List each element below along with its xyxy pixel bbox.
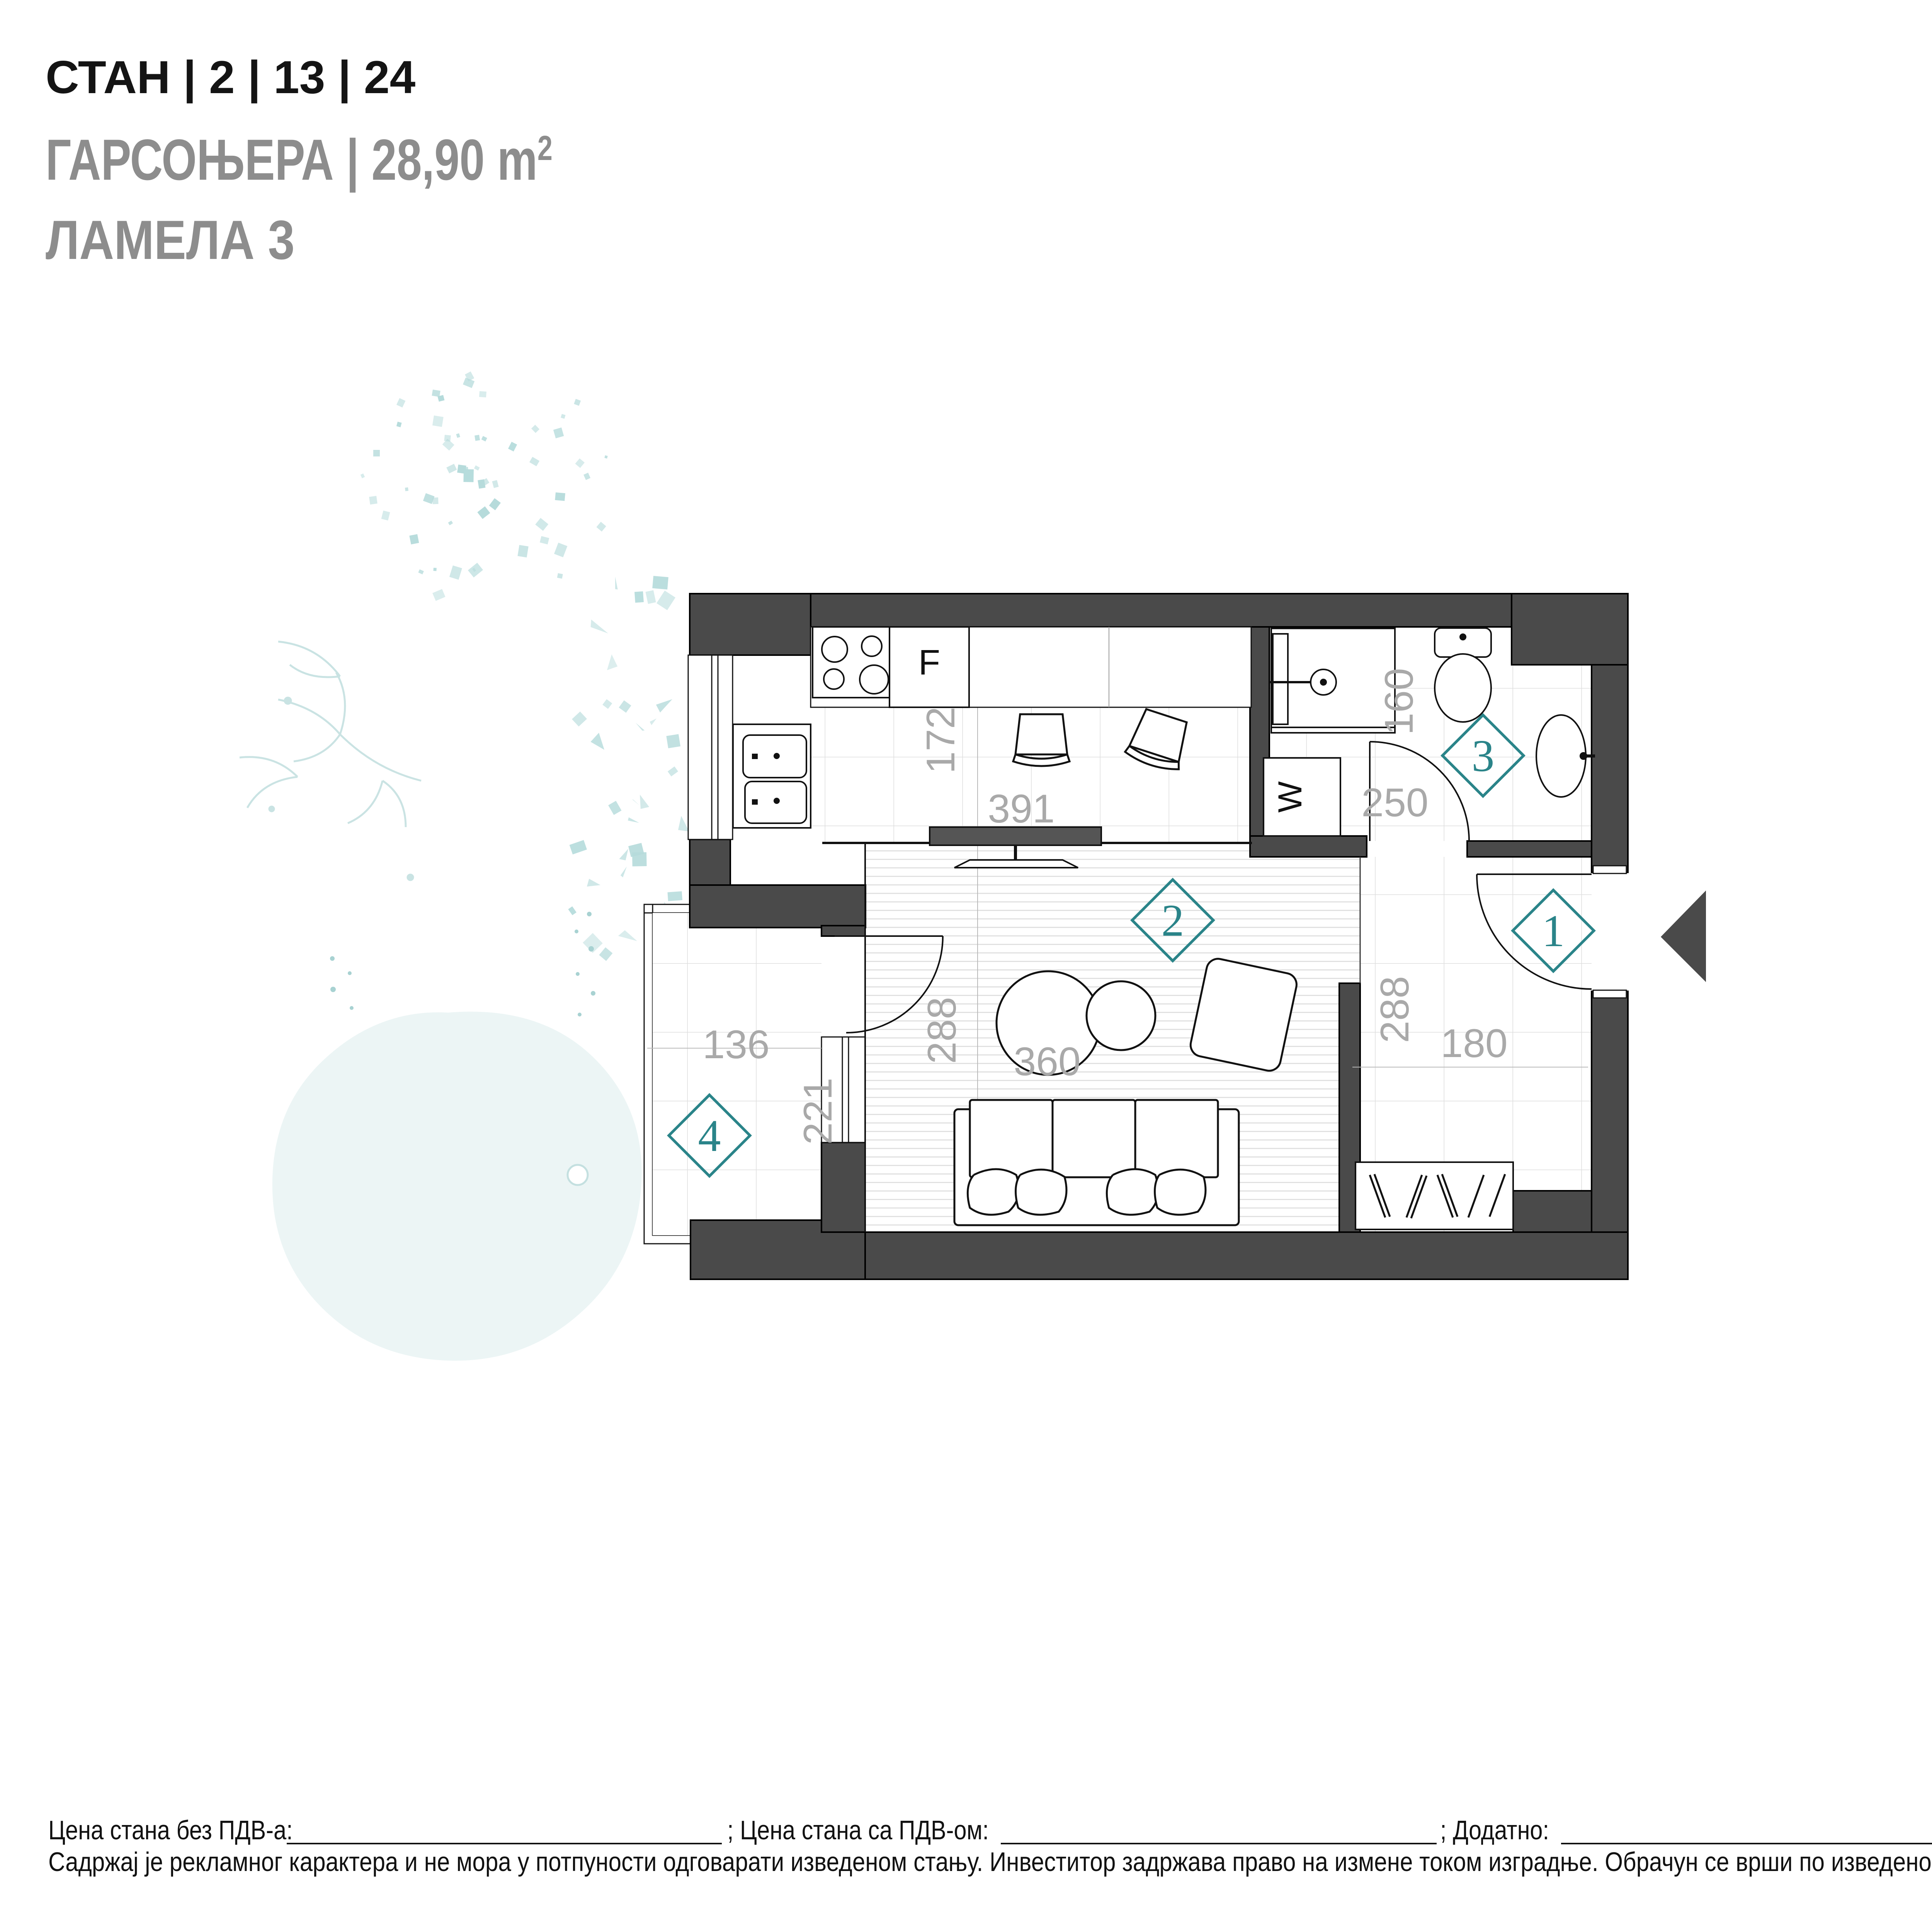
svg-text:288: 288	[920, 997, 964, 1064]
svg-text:F: F	[918, 643, 940, 682]
svg-text:2: 2	[1162, 895, 1184, 946]
svg-text:3: 3	[1472, 730, 1495, 781]
svg-text:172: 172	[918, 707, 963, 774]
svg-text:4: 4	[698, 1110, 721, 1161]
svg-text:221: 221	[796, 1078, 840, 1145]
svg-text:250: 250	[1361, 780, 1429, 825]
svg-text:288: 288	[1372, 976, 1417, 1043]
svg-text:360: 360	[1014, 1039, 1081, 1084]
svg-text:W: W	[1272, 781, 1309, 812]
svg-text:1: 1	[1542, 906, 1565, 956]
svg-text:391: 391	[988, 787, 1055, 831]
svg-text:136: 136	[702, 1022, 770, 1067]
svg-text:160: 160	[1377, 668, 1422, 735]
svg-text:180: 180	[1440, 1021, 1508, 1066]
